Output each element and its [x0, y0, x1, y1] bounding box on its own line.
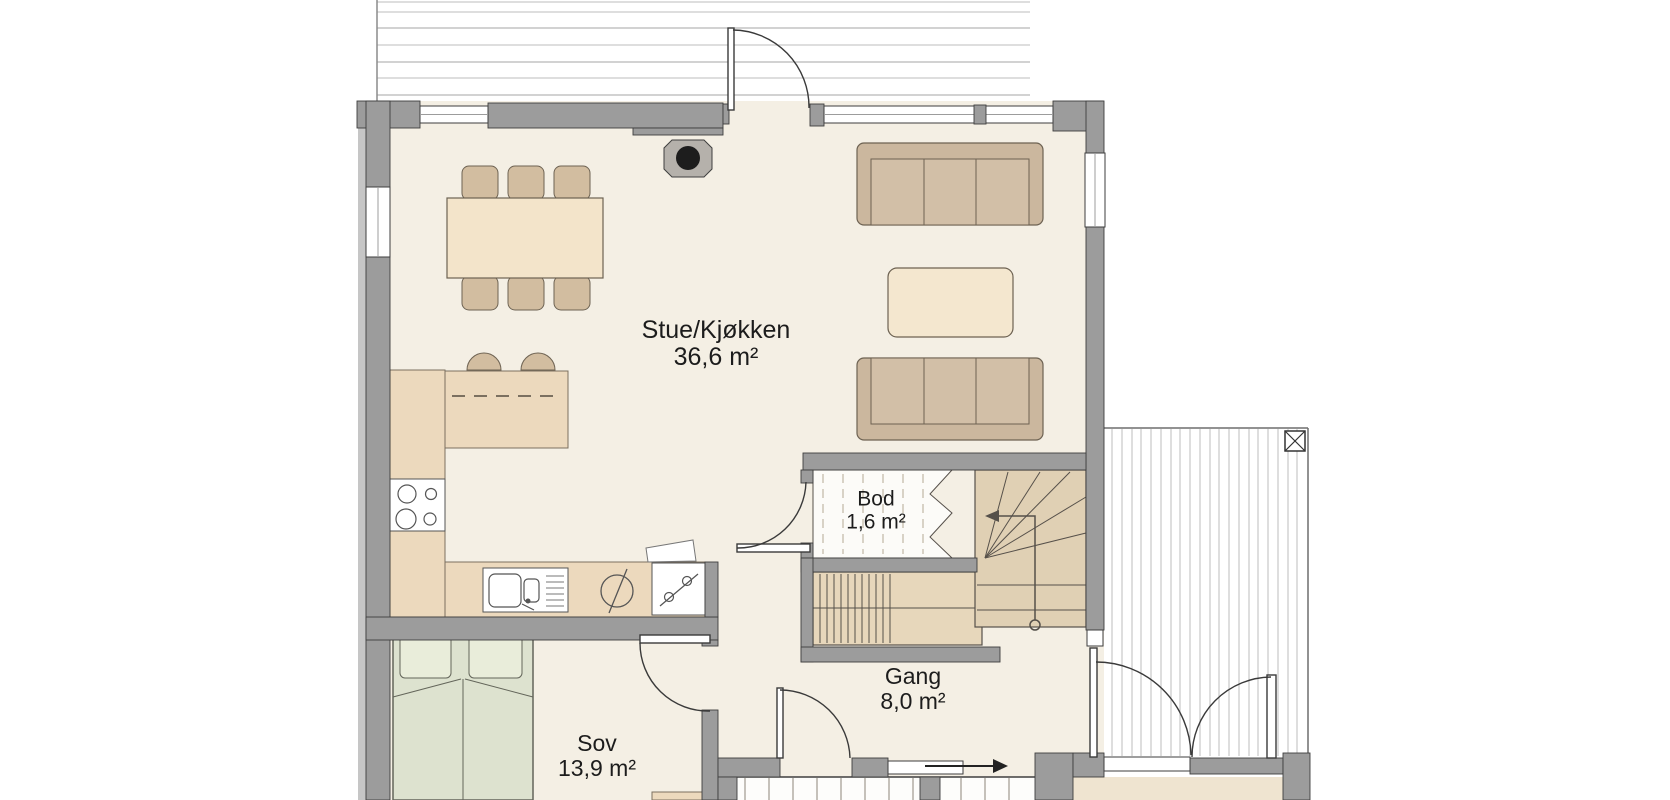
room-area: 13,9 m²	[558, 756, 636, 781]
wall-bath-stub-left	[718, 777, 737, 800]
deck-right	[1104, 428, 1308, 800]
wall-left-lower	[366, 257, 390, 800]
entry-floor	[1073, 777, 1283, 800]
deck-top-planks	[377, 2, 1030, 95]
stair-lower-run	[813, 572, 982, 645]
room-area: 8,0 m²	[880, 689, 945, 714]
dining-table	[447, 198, 603, 278]
room-name: Gang	[880, 664, 945, 689]
room-label-bod: Bod 1,6 m²	[846, 488, 906, 533]
door-terrace-top	[728, 28, 809, 110]
deck-door-jamb	[1087, 630, 1103, 646]
floor-plan-drawing	[0, 0, 1670, 800]
double-bed	[393, 628, 533, 800]
wall-counter-end-post	[705, 562, 718, 617]
room-label-gang: Gang 8,0 m²	[880, 664, 945, 714]
window-left-wall	[366, 187, 390, 257]
wall-stair-west	[801, 558, 813, 662]
wall-band	[1073, 753, 1104, 777]
room-area: 36,6 m²	[642, 344, 791, 371]
coffee-table	[888, 268, 1013, 337]
room-name: Sov	[558, 731, 636, 756]
wall-hall-south-a	[718, 758, 780, 777]
door-jamb	[810, 104, 824, 126]
wall-right-main	[1086, 227, 1104, 630]
window-mullion	[974, 105, 986, 124]
floor-plan-page: Stue/Kjøkken 36,6 m² Bod 1,6 m² Gang 8,0…	[0, 0, 1670, 800]
wall-bod-south	[801, 558, 977, 572]
sofa-bottom	[857, 358, 1043, 440]
deck-post-x-marker	[1285, 431, 1305, 451]
room-area: 1,6 m²	[846, 511, 906, 534]
deck-top	[377, 0, 1030, 101]
wall-bod-west-upper	[801, 470, 813, 483]
nightstand	[652, 792, 710, 800]
wall-pier	[1035, 753, 1073, 800]
window-right-wall	[1085, 153, 1105, 227]
wall-entry-south	[1190, 758, 1283, 774]
room-label-sov: Sov 13,9 m²	[558, 731, 636, 781]
sofa-top	[857, 143, 1043, 225]
stair-winder	[975, 470, 1086, 627]
room-name: Bod	[846, 488, 906, 511]
wall-left-upper	[366, 101, 390, 187]
cooktop-four-burners	[390, 479, 445, 531]
wall-stair-south	[801, 647, 1000, 662]
window-top-right	[824, 105, 1053, 124]
dining-set	[447, 166, 603, 310]
bathroom-floor	[737, 777, 1035, 800]
room-label-stue-kjokken: Stue/Kjøkken 36,6 m²	[642, 317, 791, 371]
wall-right-corner-drop	[1086, 101, 1104, 153]
wall-top-block-lip	[633, 128, 723, 135]
entry-threshold	[1104, 757, 1190, 771]
wall-corner-bottom-right	[1283, 753, 1310, 800]
wall-left-outer-face	[358, 101, 366, 800]
kitchen-sink	[483, 568, 568, 612]
wall-bedroom-east	[702, 710, 718, 800]
sliding-door-panel	[888, 761, 963, 774]
wall-bod-north	[803, 453, 1086, 470]
wall-top-block	[488, 103, 723, 128]
wood-stove	[664, 140, 712, 177]
wall-bath-stub-mid	[920, 777, 940, 800]
wall-hall-south-b	[852, 758, 888, 777]
room-name: Stue/Kjøkken	[642, 317, 791, 344]
window-top-left	[420, 106, 488, 123]
door-deck-from-entry	[1192, 675, 1276, 758]
